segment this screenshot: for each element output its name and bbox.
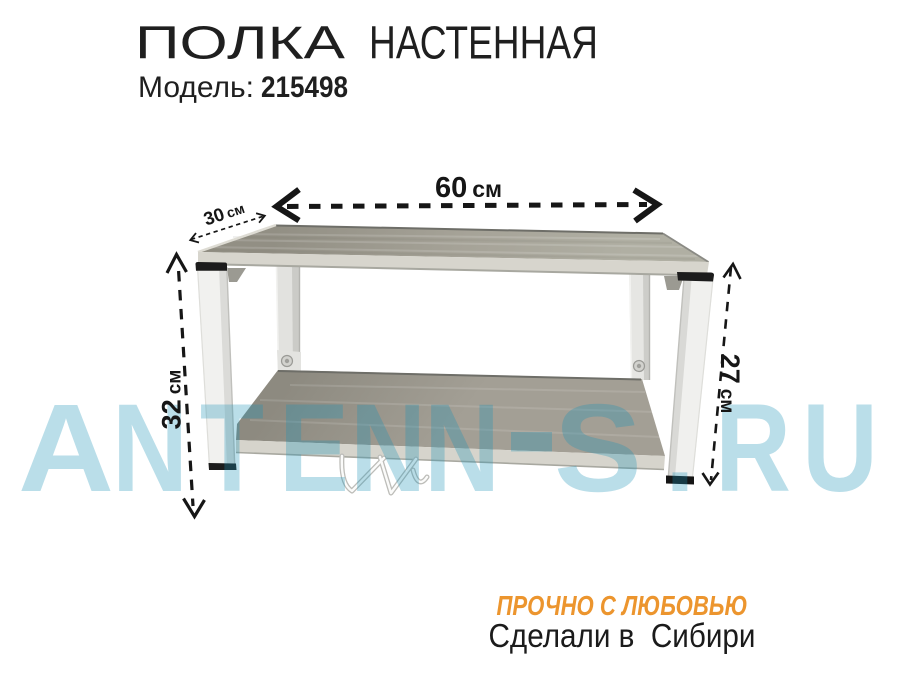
svg-text:N: N [350,379,426,518]
svg-text:215498: 215498 [261,71,348,104]
svg-text:U: U [802,379,878,518]
svg-text:A: A [18,379,114,518]
svg-text:S: S [554,379,642,518]
svg-text:N: N [424,379,500,518]
svg-text:E: E [279,379,349,518]
svg-text:Сделали в Сибири: Сделали в Сибири [489,617,756,654]
svg-text:ПОЛКА: ПОЛКА [135,17,345,69]
svg-text:Модель:: Модель: [138,71,254,104]
svg-text:T: T [200,379,264,518]
svg-text:НАСТЕННАЯ: НАСТЕННАЯ [369,17,598,69]
svg-text:.: . [665,379,694,518]
